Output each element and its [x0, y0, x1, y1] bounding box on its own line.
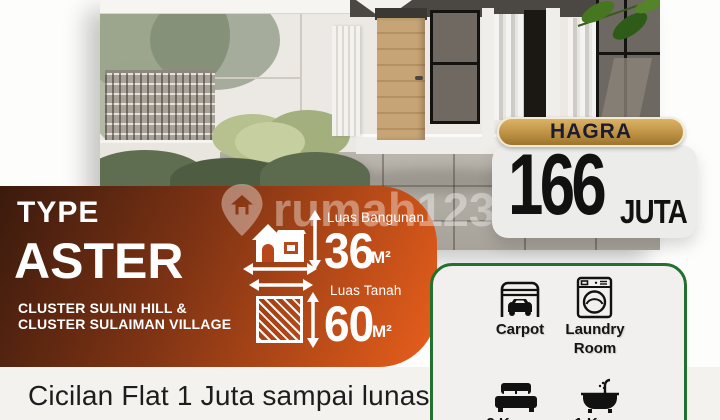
- bathtub-icon: [579, 376, 621, 413]
- bedroom-label: 2 Kamar: [473, 414, 559, 420]
- door-handle: [415, 76, 423, 80]
- curtain: [494, 14, 524, 120]
- amenities-panel: Carpot Laundry Room 2 Kamar 1 Kamar: [430, 263, 687, 420]
- bed-icon: [493, 383, 539, 413]
- carport-label: Carpot: [475, 320, 565, 339]
- watermark: rumah123: [220, 182, 495, 237]
- bathroom-label: 1 Kamar: [561, 414, 647, 420]
- horizontal-measure-arrow-icon: [243, 261, 317, 277]
- vertical-measure-arrow-icon: [305, 292, 321, 348]
- price-amount: 166: [508, 142, 603, 228]
- window-frame: [430, 62, 480, 65]
- hatched-square-icon: [256, 296, 303, 343]
- house-pin-icon: [220, 183, 264, 237]
- price-unit: JUTA: [620, 193, 687, 231]
- land-area-value: 60: [324, 295, 373, 353]
- window-glass: [430, 10, 480, 124]
- horizontal-measure-arrow-icon: [249, 277, 313, 293]
- garage-car-icon: [499, 279, 541, 317]
- building-area-unit: M²: [371, 248, 391, 268]
- wall-seam: [300, 14, 302, 122]
- land-area-unit: M²: [372, 322, 392, 342]
- watermark-text: rumah123: [273, 182, 495, 237]
- cluster-line-1: CLUSTER SULINI HILL &: [18, 300, 187, 316]
- fluted-column: [332, 26, 360, 136]
- window-glass: [524, 10, 546, 122]
- washing-machine-icon: [576, 276, 613, 319]
- window-mullion: [482, 8, 494, 144]
- laundry-room-label: Laundry Room: [559, 320, 631, 358]
- breeze-block-screen: [105, 70, 215, 142]
- promo-text: Cicilan Flat 1 Juta sampai lunas: [28, 380, 430, 412]
- type-name: ASTER: [14, 232, 183, 290]
- roof-fascia: [100, 0, 370, 14]
- type-label: TYPE: [17, 196, 99, 230]
- cluster-line-2: CLUSTER SULAIMAN VILLAGE: [18, 316, 231, 332]
- leaf-branch-icon: [568, 0, 660, 58]
